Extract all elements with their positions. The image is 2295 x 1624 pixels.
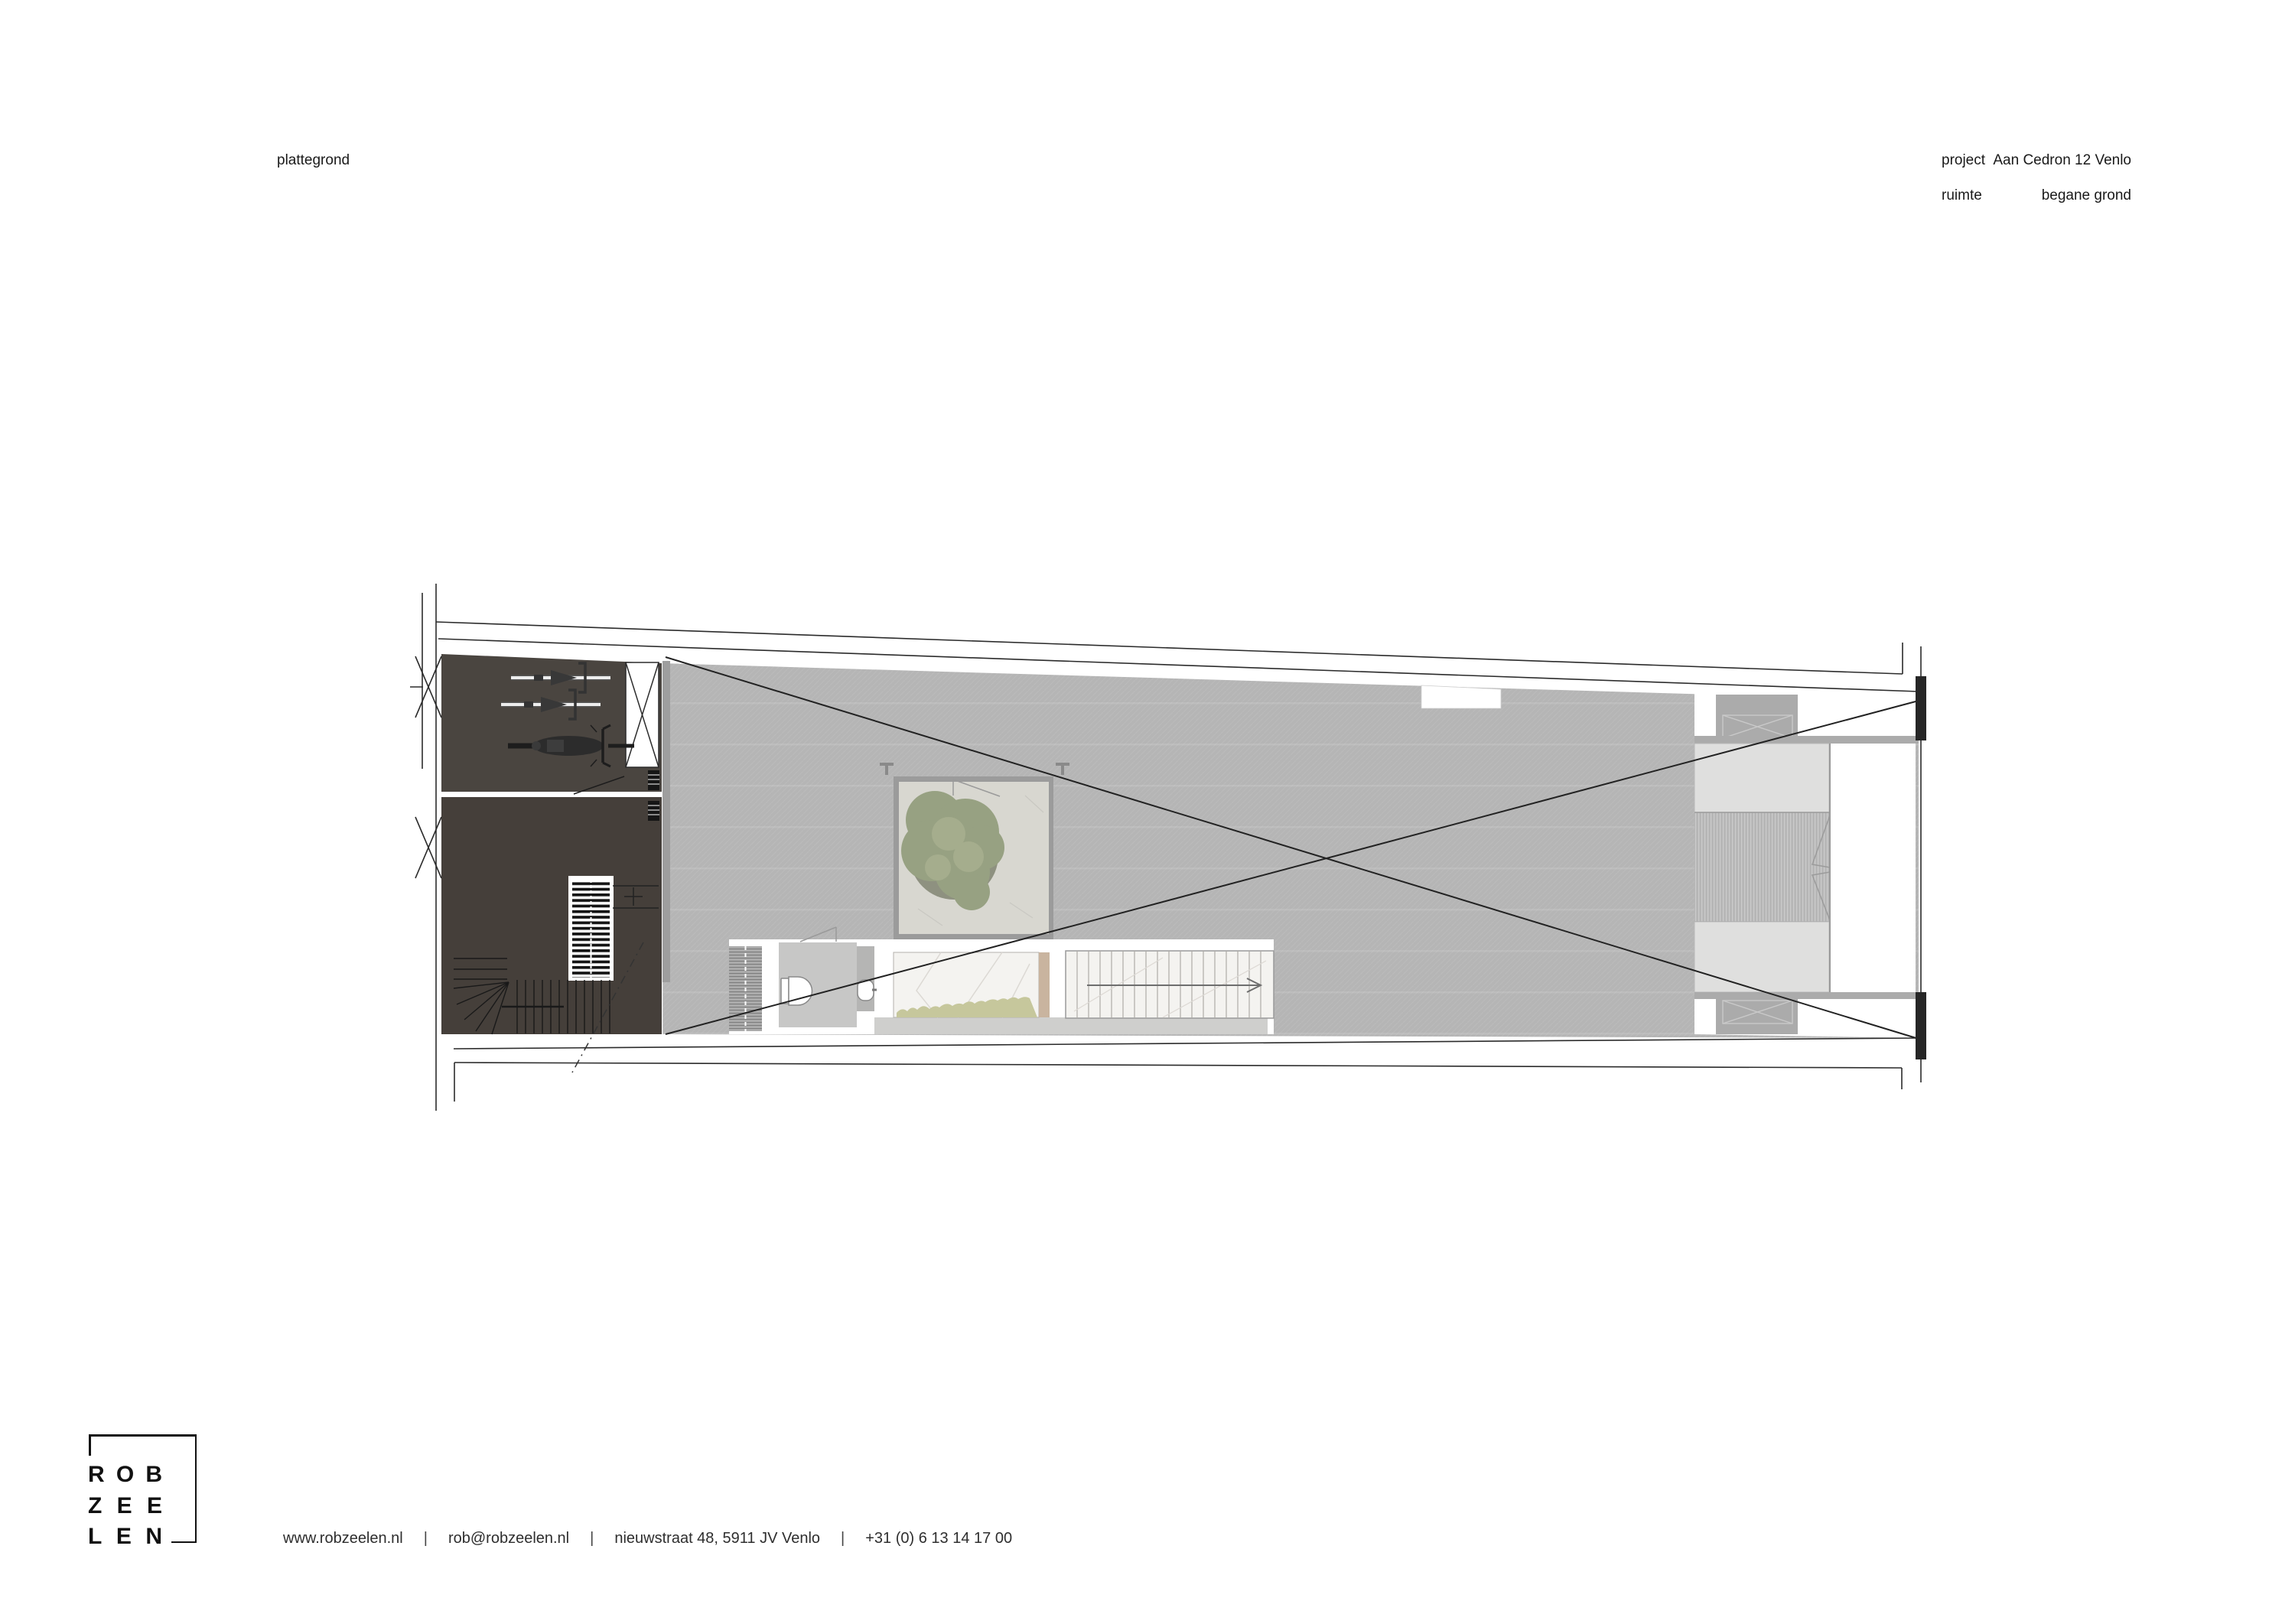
radiator-icon <box>648 770 659 790</box>
logo-letter: L <box>88 1525 102 1548</box>
rear-wall-top <box>1694 736 1919 744</box>
plinth-strip <box>874 1017 1268 1034</box>
logo-letter: B <box>145 1463 162 1486</box>
logo-letter: E <box>147 1495 162 1518</box>
skylight-block-bottom <box>1716 999 1798 1034</box>
pier-top <box>1916 676 1926 740</box>
footer-separator: | <box>590 1530 594 1548</box>
service-zone <box>729 927 1274 1034</box>
logo-row: Z E E <box>88 1495 162 1518</box>
partition-wall <box>441 792 662 797</box>
logo-row: R O B <box>88 1463 162 1486</box>
footer-contact: www.robzeelen.nl | rob@robzeelen.nl | ni… <box>283 1530 1012 1548</box>
footer-phone: +31 (0) 6 13 14 17 00 <box>865 1530 1012 1548</box>
logo-row: L E N <box>88 1525 162 1548</box>
logo-letter: N <box>145 1525 162 1548</box>
logo-frame-left-stub <box>89 1434 91 1456</box>
steel-stair <box>568 876 614 981</box>
courtyard <box>880 763 1069 939</box>
footer-website: www.robzeelen.nl <box>283 1530 403 1548</box>
interior-wall <box>662 661 670 982</box>
stair-hall-room <box>441 797 662 1034</box>
footer-email: rob@robzeelen.nl <box>448 1530 569 1548</box>
concrete-panel-top <box>1694 744 1829 812</box>
toilet-icon <box>781 977 812 1005</box>
logo-letter: O <box>116 1463 134 1486</box>
logo-frame-right <box>195 1434 197 1543</box>
footer-separator: | <box>424 1530 428 1548</box>
logo-letter: E <box>116 1525 132 1548</box>
storage-closet <box>626 662 659 767</box>
wood-strip <box>1039 952 1050 1017</box>
logo-letter: Z <box>88 1495 102 1518</box>
rear-terrace-zone <box>1694 692 1919 1038</box>
logo-frame-bottom-stub <box>171 1541 197 1544</box>
wall-recess <box>1421 685 1501 708</box>
skylight-block-top <box>1716 695 1798 737</box>
logo-letter: E <box>117 1495 132 1518</box>
concrete-panel-bottom <box>1694 922 1829 992</box>
stone-stair <box>1066 951 1274 1018</box>
pier-bottom <box>1916 992 1926 1059</box>
rear-wall-bottom <box>1694 992 1919 999</box>
floor-plan-drawing <box>0 0 2295 1624</box>
radiator-icon <box>648 801 659 821</box>
logo-frame-top <box>89 1434 197 1437</box>
terrace <box>1831 744 1916 992</box>
logo-letter: R <box>88 1463 105 1486</box>
footer-separator: | <box>841 1530 845 1548</box>
footer-address: nieuwstraat 48, 5911 JV Venlo <box>614 1530 820 1548</box>
front-rooms <box>441 654 662 1072</box>
deck-stripes <box>1694 812 1829 922</box>
drawing-sheet: plattegrond project Aan Cedron 12 Venlo … <box>0 0 2295 1624</box>
